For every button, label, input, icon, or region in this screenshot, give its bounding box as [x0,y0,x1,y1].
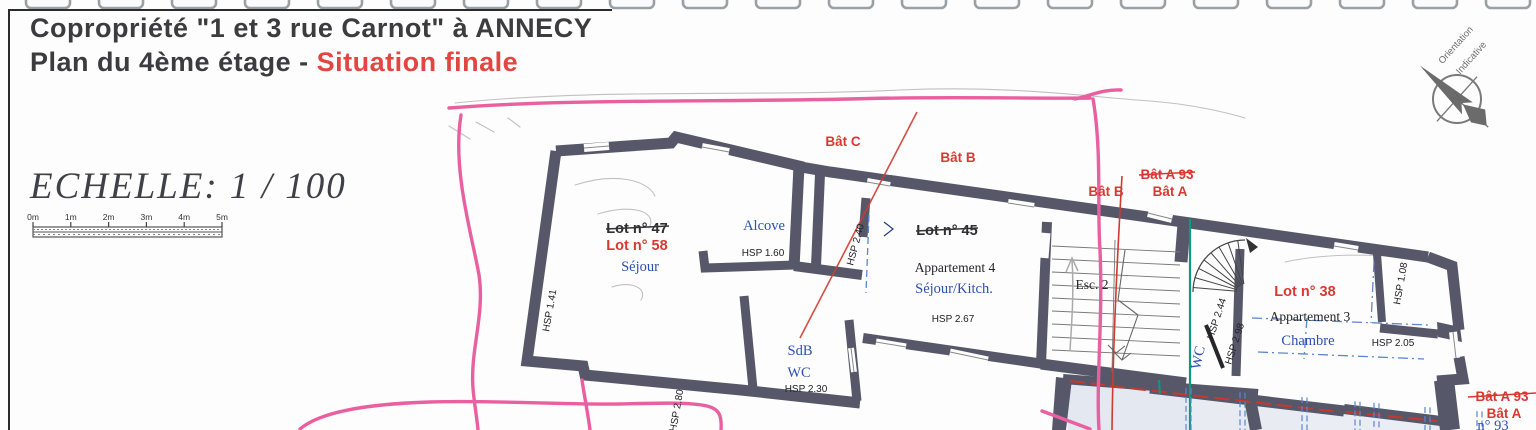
page-title: Copropriété "1 et 3 rue Carnot" à ANNECY [30,11,592,45]
north-compass-icon: N Orientation Indicative [1400,19,1530,149]
label-chambre: Chambre [1281,333,1334,349]
page-subtitle: Plan du 4ème étage - Situation finale [30,45,592,79]
label-appartement-4: Appartement 4 [915,260,996,275]
scale-bar: 0m 1m 2m 3m 4m 5m [27,212,228,237]
label-hsp-160: HSP 1.60 [742,248,785,259]
scale-tick-0m: 0m [27,212,39,222]
label-sejour: Séjour [621,259,659,275]
label-bat-b-mid: Bât B [1088,184,1124,199]
label-sejour-kitch: Séjour/Kitch. [915,281,993,297]
label-hsp-141: HSP 1.41 [541,288,559,332]
label-bat-c: Bât C [825,134,861,149]
label-wc-right: WC [1188,345,1209,371]
label-hsp-205: HSP 2.05 [1372,338,1415,349]
label-hsp-280: HSP 2.80 [668,388,686,430]
spiral-staircase [1193,238,1258,292]
scale-tick-4m: 4m [178,212,190,222]
label-bat-b-top: Bât B [940,150,976,165]
scale-tick-2m: 2m [103,212,115,222]
label-hsp-267: HSP 2.67 [932,314,975,325]
scale-title: ECHELLE: 1 / 100 [30,165,347,208]
scanned-floor-plan-page: Copropriété "1 et 3 rue Carnot" à ANNECY… [0,0,1536,430]
title-block: Copropriété "1 et 3 rue Carnot" à ANNECY… [30,11,592,79]
label-hsp-298: HSP 2.98 [1223,322,1247,366]
subtitle-prefix: Plan du 4ème étage - [30,47,317,77]
label-n93: n° 93 [1477,418,1508,430]
label-hsp-108: HSP 1.08 [1392,261,1410,305]
label-lot-38: Lot n° 38 [1274,284,1335,300]
label-esc-2: Esc. 2 [1076,277,1109,292]
scale-tick-3m: 3m [140,212,152,222]
label-lot-58: Lot n° 58 [606,238,667,254]
label-appartement-3: Appartement 3 [1270,309,1351,324]
scale-tick-marks [33,222,222,227]
label-bat-a-mid: Bât A [1153,184,1188,199]
label-sdb: SdB [788,343,813,359]
scale-tick-5m: 5m [216,212,228,222]
marker-lines [300,90,1482,430]
label-hsp-244: HSP 2.44 [1205,297,1229,341]
label-alcove: Alcove [743,218,785,234]
binding-marks [26,0,1530,8]
label-wc-left: WC [787,365,810,381]
subtitle-emphasis: Situation finale [317,47,519,77]
label-hsp-230: HSP 2.30 [785,384,828,395]
scale-tick-1m: 1m [65,212,77,222]
